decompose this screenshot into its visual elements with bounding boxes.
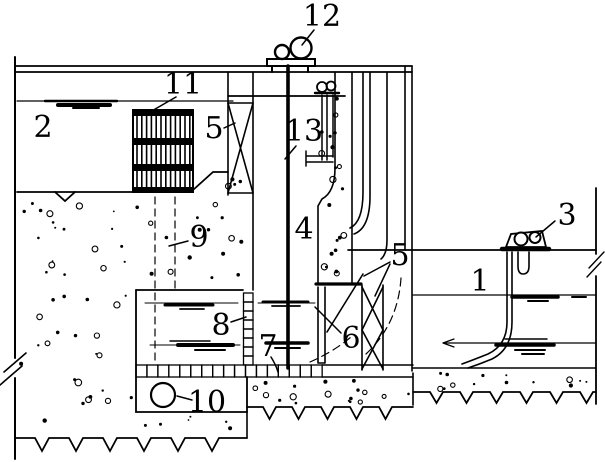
callout-13: 13: [285, 114, 323, 149]
callout-3: 3: [557, 198, 576, 233]
callout-2: 2: [33, 110, 52, 145]
sluice-cross-section: 121125134931568710: [0, 0, 605, 462]
callout-4: 4: [294, 212, 313, 247]
callout-7: 7: [258, 329, 277, 364]
callout-8: 8: [211, 308, 230, 343]
engineering-drawing: 121125134931568710: [0, 0, 605, 462]
callout-1: 1: [470, 264, 489, 299]
callout-6: 6: [341, 321, 360, 356]
foundation-top-line: [17, 172, 228, 201]
callout-11: 11: [164, 67, 202, 102]
callout-5a-leader: [224, 123, 235, 128]
callout-5b: 5: [390, 238, 409, 273]
trash-rack: [133, 110, 193, 192]
right-border-line: [587, 188, 604, 404]
lower-brace-column: [362, 285, 383, 370]
callout-3-leader: [536, 221, 555, 237]
callout-5b-leader: [364, 262, 390, 296]
valve-operator: [502, 231, 549, 249]
excavation-sawtooth-edges: [15, 392, 596, 451]
downstream-water-lines: [413, 295, 596, 354]
callout-9-leader: [169, 241, 188, 246]
callout-10: 10: [188, 385, 226, 420]
upstream-water-line: [17, 101, 233, 108]
hoist-winch: [267, 38, 315, 73]
callout-12: 12: [303, 0, 341, 34]
construction-joint-dashed: [155, 197, 175, 362]
callout-9: 9: [189, 220, 208, 255]
left-border-line: [0, 57, 26, 459]
drain-pipe-section: [151, 383, 175, 407]
callout-5a: 5: [204, 111, 223, 146]
